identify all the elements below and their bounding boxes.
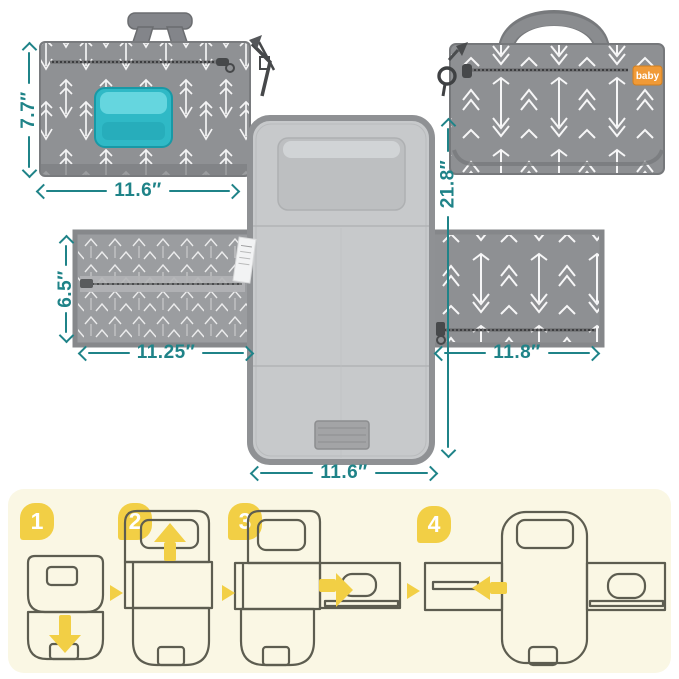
next-step-chevron-icon bbox=[110, 585, 123, 601]
dimension-label: 6.5″ bbox=[55, 270, 77, 308]
dimension-label: 11.6″ bbox=[107, 180, 169, 202]
arrow-left-icon bbox=[78, 345, 94, 361]
dimension-label: 11.6″ bbox=[313, 462, 375, 484]
left-mesh-pocket-wing bbox=[75, 232, 250, 345]
arrow-right-icon bbox=[239, 345, 255, 361]
brand-tag: baby bbox=[633, 66, 662, 85]
folding-steps-diagram bbox=[8, 489, 671, 673]
dimension-front-width: 11.6″ bbox=[38, 179, 238, 203]
dimension-left-pocket-height: 6.5″ bbox=[52, 237, 80, 341]
zipper-pull bbox=[80, 279, 93, 288]
arrow-right-icon bbox=[585, 345, 601, 361]
dimension-label: 21.8″ bbox=[437, 160, 459, 209]
arrow-left-icon bbox=[36, 183, 52, 199]
folding-steps-panel: 1 2 3 4 bbox=[8, 489, 671, 673]
arrow-right-icon bbox=[423, 465, 439, 481]
dimension-mat-width: 11.6″ bbox=[252, 461, 436, 485]
dimension-left-pocket-width: 11.25″ bbox=[80, 341, 252, 365]
fold-up-arrow-icon bbox=[154, 523, 186, 561]
arrow-up-icon bbox=[58, 235, 74, 251]
dimension-label: 7.7″ bbox=[18, 91, 40, 129]
center-mat-panel bbox=[233, 118, 432, 462]
arrow-left-icon bbox=[250, 465, 266, 481]
arrow-right-icon bbox=[225, 183, 241, 199]
step-4-drawing bbox=[425, 512, 665, 665]
next-step-chevron-icon bbox=[407, 583, 420, 599]
arrow-up-icon bbox=[440, 118, 456, 134]
head-pillow bbox=[278, 138, 405, 210]
fold-down-arrow-icon bbox=[49, 615, 81, 653]
hanging-strap bbox=[249, 35, 274, 96]
product-infographic: baby bbox=[0, 0, 679, 679]
velcro-strip bbox=[315, 421, 369, 449]
arrow-down-icon bbox=[440, 443, 456, 459]
dimension-front-height: 7.7″ bbox=[14, 44, 44, 176]
brand-logo-text: baby bbox=[636, 71, 660, 82]
arrow-down-icon bbox=[21, 163, 37, 179]
arrow-down-icon bbox=[58, 328, 74, 344]
dimension-right-pocket-width: 11.8″ bbox=[436, 341, 598, 365]
arrow-left-icon bbox=[434, 345, 450, 361]
dimension-label: 11.25″ bbox=[130, 342, 203, 364]
dimension-unfolded-length: 21.8″ bbox=[432, 120, 464, 456]
open-changing-mat-photo bbox=[60, 108, 608, 476]
dimension-label: 11.8″ bbox=[486, 342, 548, 364]
step-3-drawing bbox=[235, 511, 400, 665]
next-step-chevron-icon bbox=[222, 585, 235, 601]
arrow-up-icon bbox=[21, 42, 37, 58]
